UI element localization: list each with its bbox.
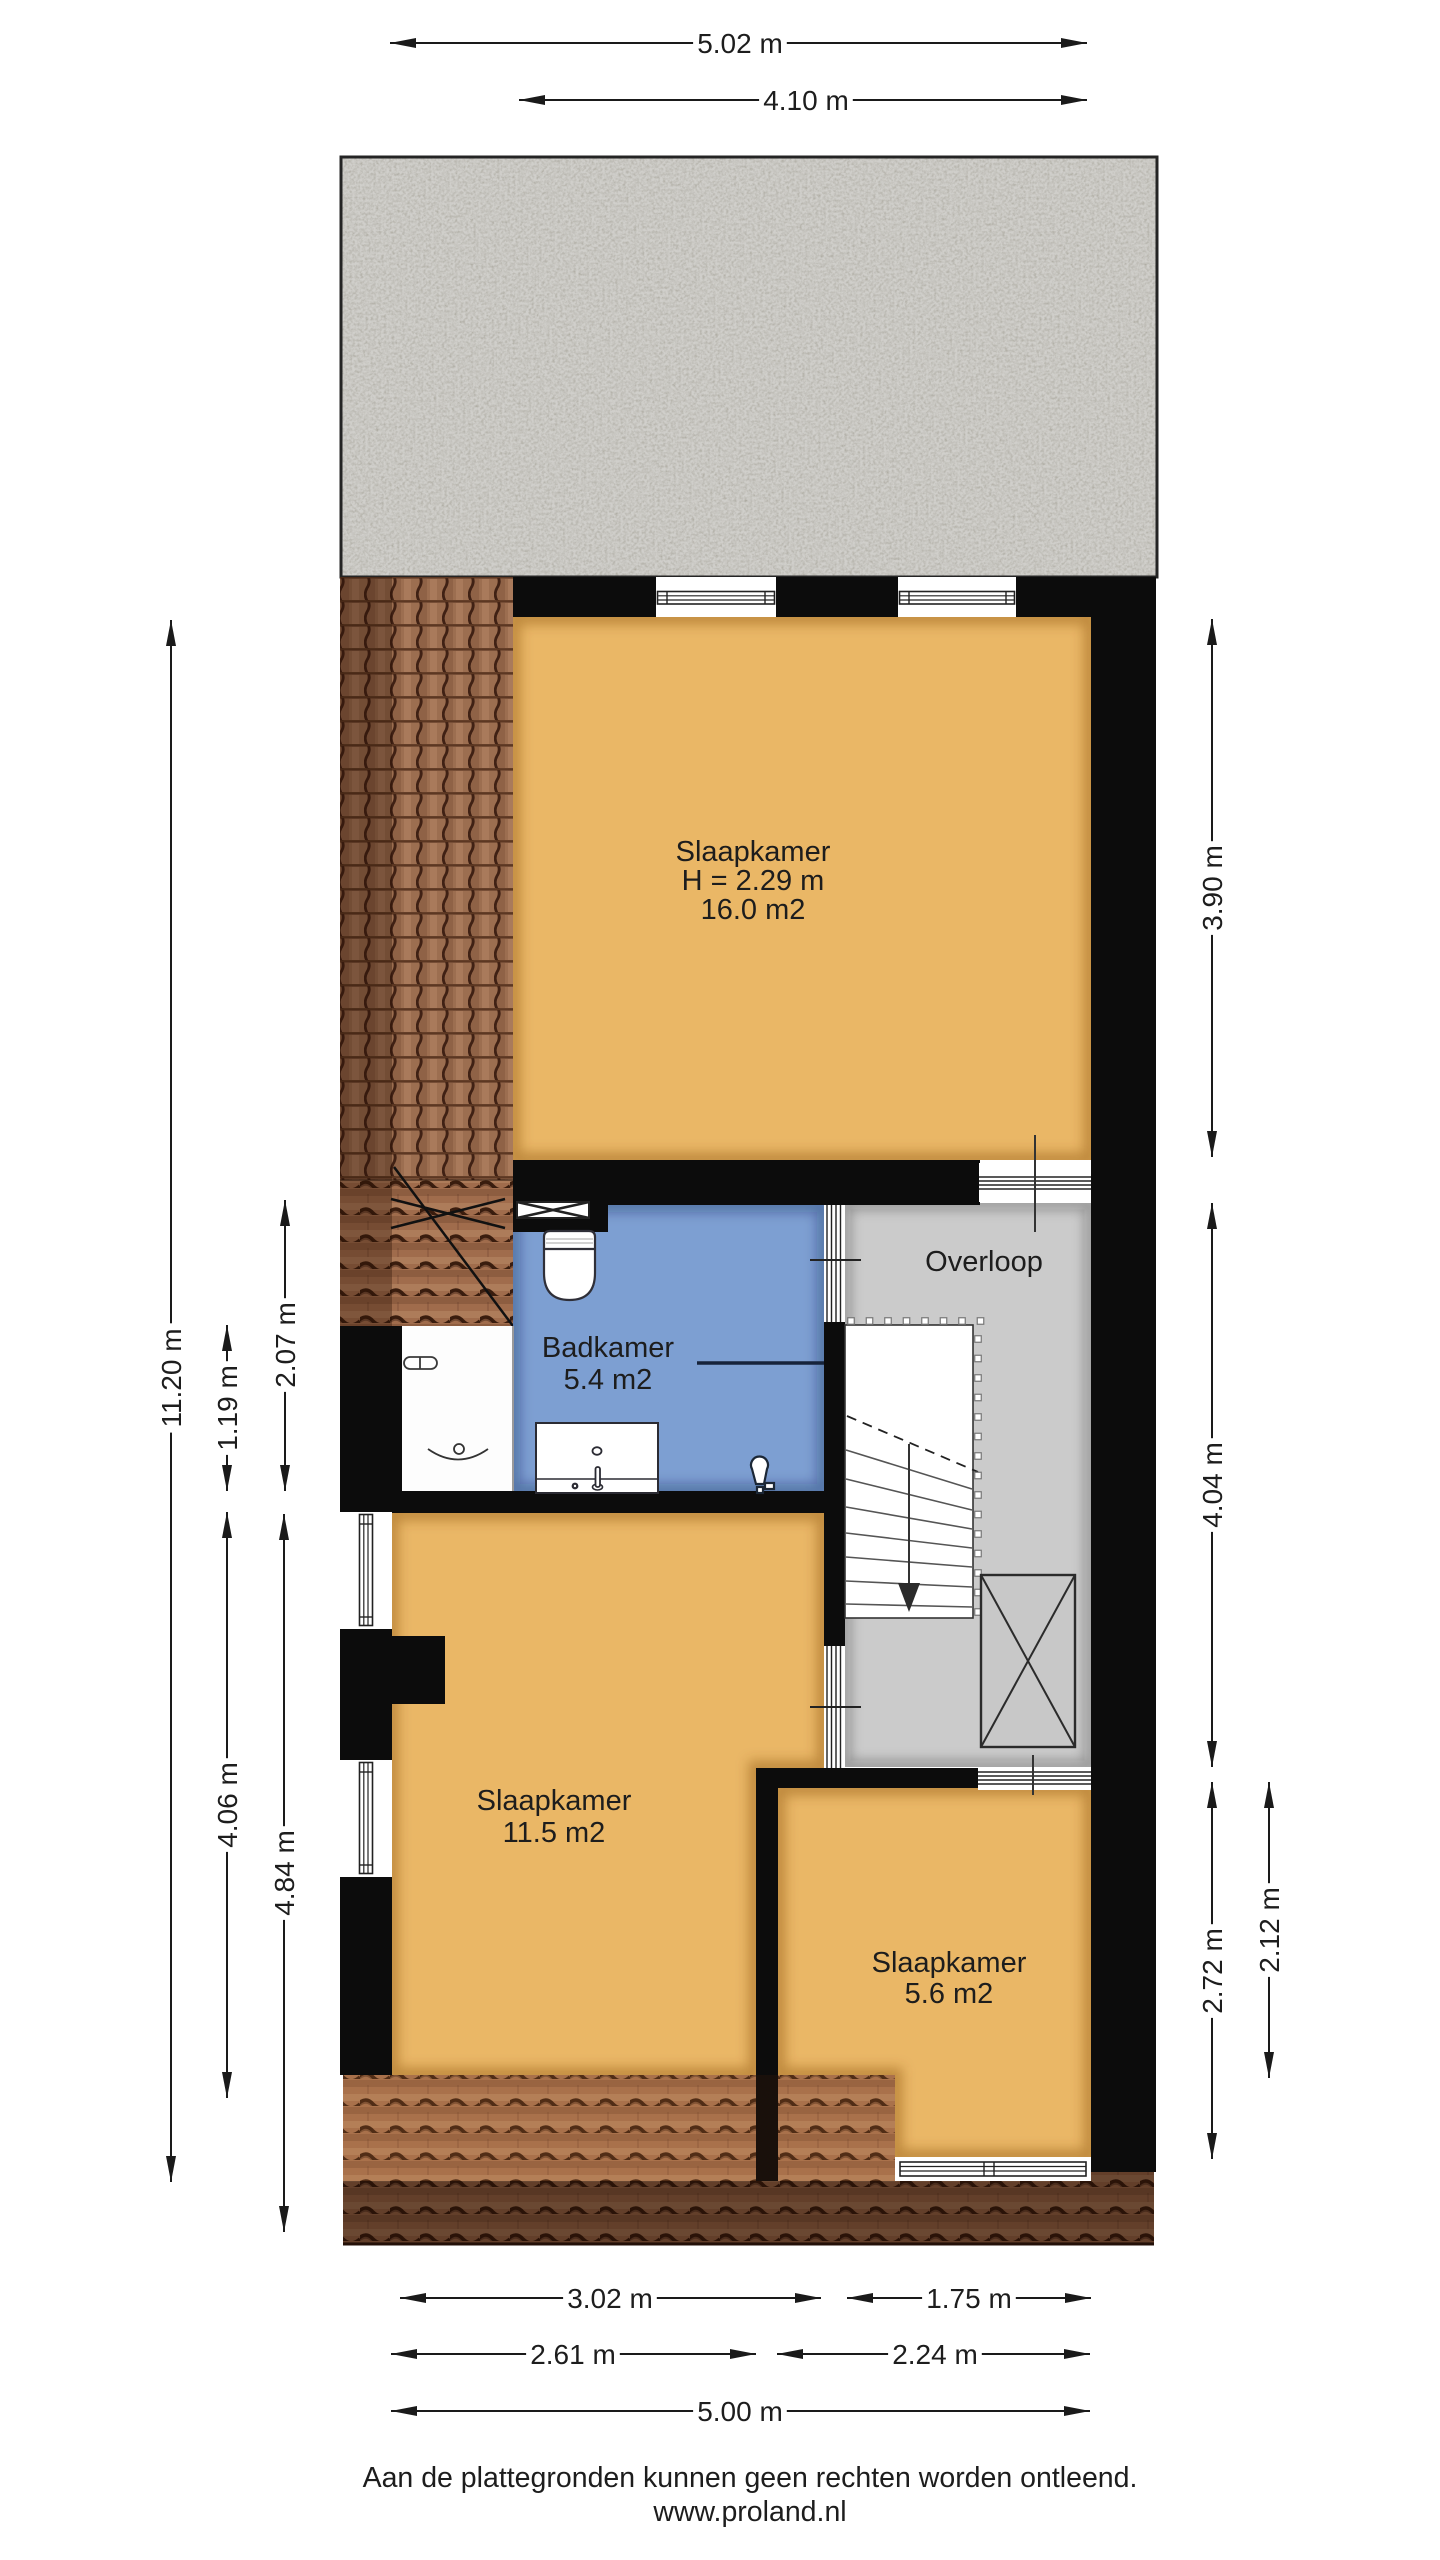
svg-text:2.72 m: 2.72 m [1197, 1928, 1228, 2014]
svg-text:5.4 m2: 5.4 m2 [564, 1364, 653, 1396]
svg-text:Slaapkamer: Slaapkamer [676, 836, 831, 868]
svg-text:Badkamer: Badkamer [542, 1332, 675, 1364]
svg-text:5.6 m2: 5.6 m2 [905, 1978, 994, 2010]
svg-text:2.12 m: 2.12 m [1254, 1887, 1285, 1973]
svg-text:2.24 m: 2.24 m [892, 2339, 978, 2370]
svg-text:4.06 m: 4.06 m [212, 1762, 243, 1848]
svg-text:3.90 m: 3.90 m [1197, 845, 1228, 931]
svg-text:Aan de plattegronden kunnen ge: Aan de plattegronden kunnen geen rechten… [363, 2462, 1138, 2494]
svg-text:3.02 m: 3.02 m [567, 2283, 653, 2314]
svg-text:1.19 m: 1.19 m [212, 1365, 243, 1451]
svg-text:16.0 m2: 16.0 m2 [701, 894, 806, 926]
svg-text:11.5 m2: 11.5 m2 [503, 1817, 606, 1849]
svg-text:5.00 m: 5.00 m [697, 2396, 783, 2427]
svg-text:4.10 m: 4.10 m [763, 85, 849, 116]
svg-text:1.75 m: 1.75 m [926, 2283, 1012, 2314]
svg-text:2.07 m: 2.07 m [270, 1302, 301, 1388]
svg-text:5.02 m: 5.02 m [697, 28, 783, 59]
svg-text:Slaapkamer: Slaapkamer [477, 1785, 632, 1817]
svg-text:2.61 m: 2.61 m [530, 2339, 616, 2370]
svg-text:11.20 m: 11.20 m [156, 1328, 187, 1427]
svg-text:Overloop: Overloop [925, 1246, 1043, 1278]
svg-text:4.84 m: 4.84 m [269, 1830, 300, 1916]
svg-text:Slaapkamer: Slaapkamer [872, 1947, 1027, 1979]
svg-text:www.proland.nl: www.proland.nl [652, 2496, 846, 2528]
svg-text:H = 2.29 m: H = 2.29 m [682, 865, 825, 897]
svg-text:4.04 m: 4.04 m [1197, 1442, 1228, 1528]
